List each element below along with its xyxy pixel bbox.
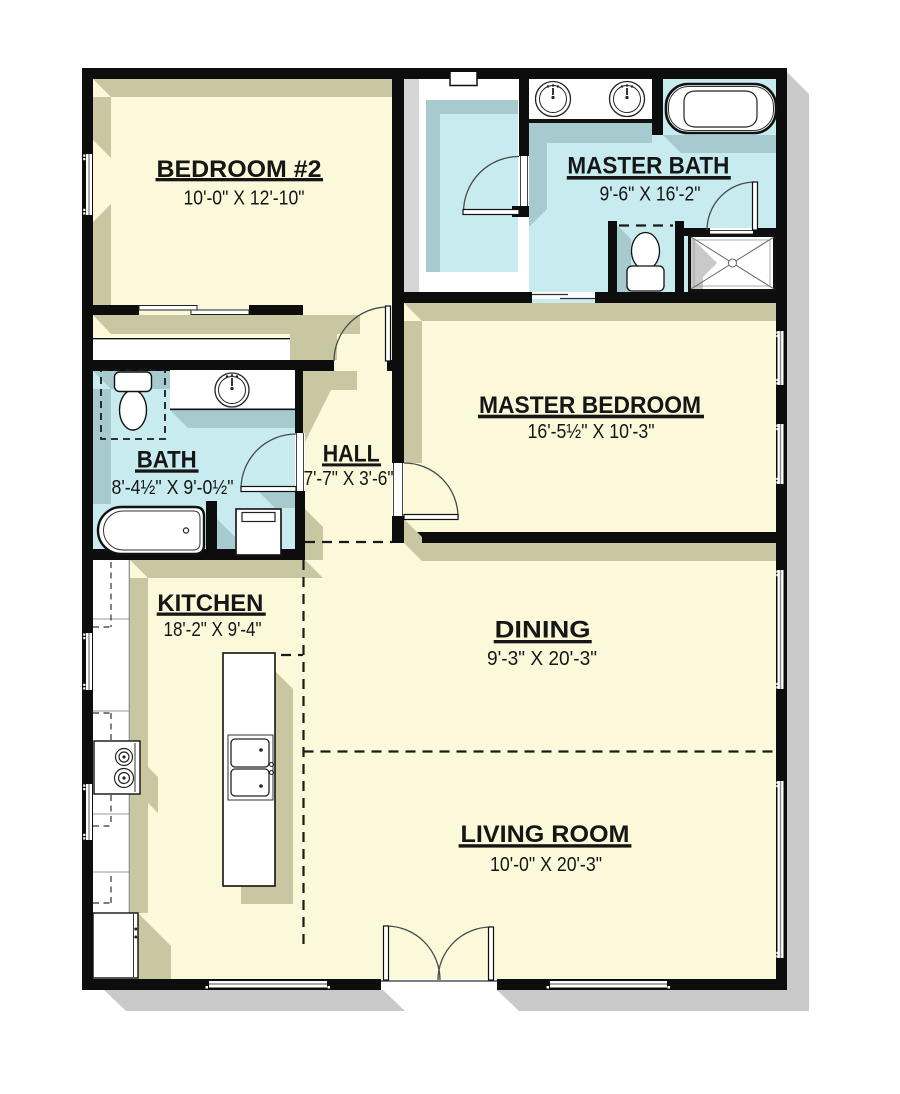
svg-text:7'-7" X 3'-6": 7'-7" X 3'-6"	[304, 468, 394, 490]
svg-text:MASTER BATH: MASTER BATH	[567, 153, 729, 180]
svg-text:LIVING ROOM: LIVING ROOM	[461, 821, 630, 848]
svg-text:8'-4½" X 9'-0½": 8'-4½" X 9'-0½"	[112, 477, 234, 499]
svg-text:10'-0" X 20'-3": 10'-0" X 20'-3"	[490, 854, 602, 876]
svg-text:9'-3" X 20'-3": 9'-3" X 20'-3"	[487, 648, 597, 670]
svg-text:18'-2" X 9'-4": 18'-2" X 9'-4"	[164, 619, 262, 641]
svg-text:9'-6" X 16'-2": 9'-6" X 16'-2"	[600, 184, 701, 206]
svg-text:HALL: HALL	[323, 440, 380, 467]
svg-text:10'-0" X 12'-10": 10'-0" X 12'-10"	[184, 188, 305, 210]
svg-text:16'-5½" X 10'-3": 16'-5½" X 10'-3"	[528, 421, 655, 443]
svg-text:DINING: DINING	[495, 617, 591, 644]
